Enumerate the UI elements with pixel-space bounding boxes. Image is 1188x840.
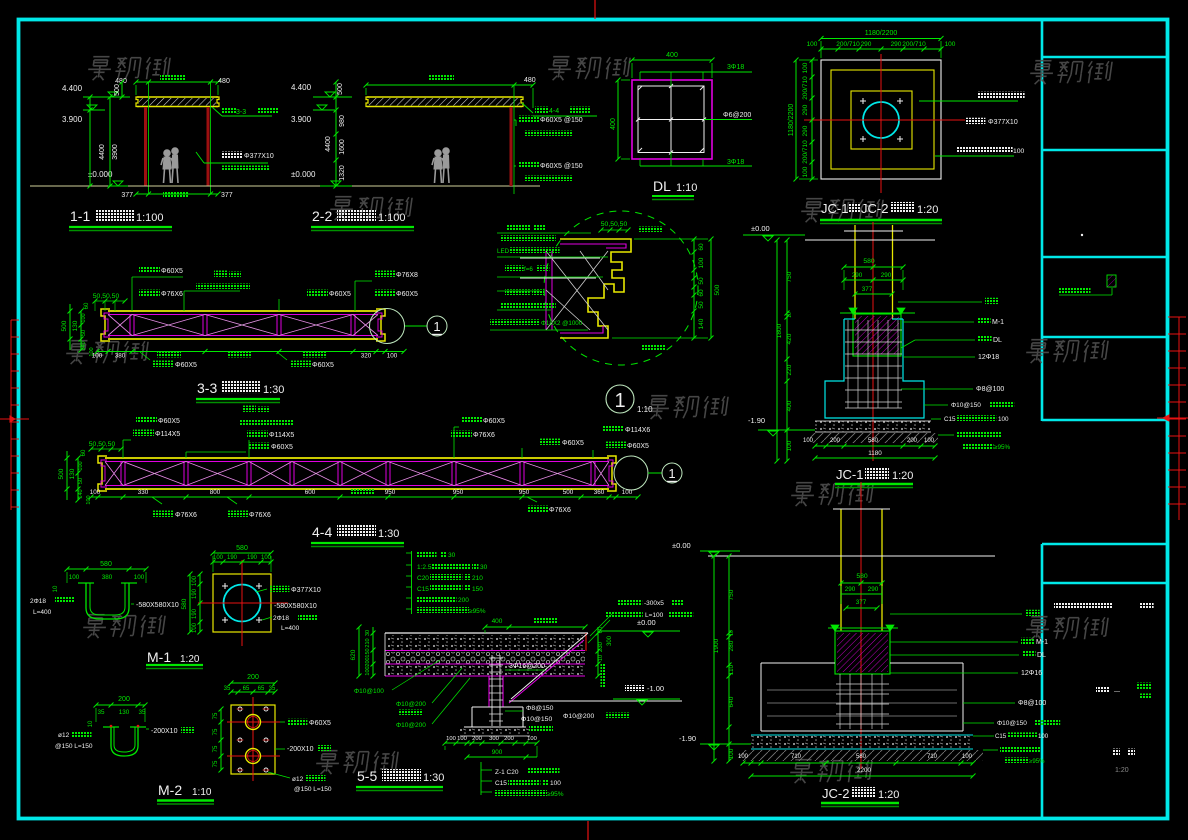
svg-text:≥95%: ≥95% [994, 444, 1010, 451]
svg-text:Φ76X8: Φ76X8 [396, 272, 418, 279]
svg-text:C15: C15 [495, 780, 507, 787]
svg-text:500: 500 [337, 83, 344, 95]
svg-text:130: 130 [72, 320, 79, 331]
svg-text:Φ114X6: Φ114X6 [625, 427, 650, 434]
svg-text:1:20: 1:20 [917, 204, 938, 216]
svg-text:4400: 4400 [99, 144, 106, 160]
svg-text:Φ60X5: Φ60X5 [483, 418, 505, 425]
svg-text:100: 100 [698, 257, 705, 268]
svg-text:-580X580X10: -580X580X10 [274, 603, 317, 610]
svg-text:290: 290 [845, 586, 856, 593]
svg-text:400: 400 [666, 52, 678, 59]
svg-text:130: 130 [69, 468, 76, 479]
svg-text:200: 200 [472, 736, 482, 742]
svg-text:LED: LED [497, 248, 510, 255]
svg-text:60: 60 [698, 289, 705, 297]
svg-text:JC-2: JC-2 [861, 201, 888, 216]
svg-text:140: 140 [698, 318, 705, 329]
svg-text:377: 377 [856, 599, 867, 606]
svg-text:580: 580 [856, 573, 868, 580]
svg-text:75: 75 [213, 728, 219, 735]
svg-text:500: 500 [714, 284, 721, 295]
svg-text:C15: C15 [417, 586, 429, 593]
svg-text:-200X10: -200X10 [151, 728, 178, 735]
svg-text:75: 75 [213, 712, 219, 719]
svg-text:290: 290 [891, 41, 902, 48]
svg-text:580: 580 [856, 754, 867, 760]
svg-text:200: 200 [504, 736, 514, 742]
svg-text:580: 580 [868, 438, 879, 444]
svg-text:200: 200 [365, 657, 371, 666]
svg-text:950: 950 [453, 489, 464, 496]
svg-text:100: 100 [446, 736, 456, 742]
svg-text:380: 380 [115, 353, 126, 360]
svg-text:4400: 4400 [325, 136, 332, 152]
svg-text:360: 360 [594, 489, 605, 496]
svg-text:30: 30 [480, 564, 488, 571]
svg-text:100: 100 [527, 736, 537, 742]
svg-text:-1.00: -1.00 [647, 684, 664, 693]
svg-text:420: 420 [786, 333, 793, 344]
svg-text:Φ60X5: Φ60X5 [396, 291, 418, 298]
svg-text:Φ76X6: Φ76X6 [161, 291, 183, 298]
svg-text:-200X10: -200X10 [287, 746, 314, 753]
svg-text:60: 60 [698, 243, 705, 251]
svg-text:Φ377X10: Φ377X10 [988, 119, 1018, 126]
svg-text:290: 290 [802, 125, 809, 136]
svg-text:1900: 1900 [713, 638, 720, 653]
svg-text:290: 290 [852, 272, 863, 279]
svg-text:100: 100 [728, 748, 735, 759]
svg-text:Φ76X6: Φ76X6 [549, 507, 571, 514]
svg-text:2Φ18: 2Φ18 [273, 615, 289, 622]
svg-text:1180/2200: 1180/2200 [788, 104, 795, 137]
svg-text:200/710: 200/710 [802, 76, 809, 100]
svg-text:500: 500 [61, 320, 68, 331]
svg-text:1:100: 1:100 [136, 212, 164, 224]
svg-text:710: 710 [791, 754, 802, 760]
svg-text:10: 10 [53, 585, 59, 592]
svg-text:Φ10@200: Φ10@200 [396, 722, 426, 729]
svg-text:±0.000: ±0.000 [88, 170, 113, 179]
svg-text:750: 750 [786, 271, 793, 282]
svg-text:50: 50 [698, 301, 705, 309]
svg-text:Φ114X5: Φ114X5 [269, 432, 294, 439]
svg-text:Φ8@100: Φ8@100 [1018, 700, 1046, 707]
svg-text:1:10: 1:10 [676, 182, 697, 194]
svg-text:C20: C20 [417, 575, 429, 582]
svg-text:1:30: 1:30 [378, 528, 399, 540]
svg-text:Φ377X10: Φ377X10 [244, 153, 274, 160]
svg-text:100: 100 [78, 461, 84, 470]
svg-text:980: 980 [339, 115, 346, 127]
svg-text:Φ377X10: Φ377X10 [291, 587, 321, 594]
svg-text:230: 230 [598, 641, 604, 652]
svg-text:10: 10 [598, 655, 604, 661]
svg-text:100: 100 [192, 575, 198, 586]
svg-text:100: 100 [261, 555, 272, 561]
svg-text:290: 290 [802, 104, 809, 115]
svg-text:320: 320 [361, 353, 372, 360]
svg-text:1:100: 1:100 [378, 212, 406, 224]
svg-text:500: 500 [563, 489, 574, 496]
svg-text:1:10: 1:10 [637, 405, 653, 414]
svg-text:300: 300 [489, 736, 499, 742]
svg-text:1:20: 1:20 [892, 470, 913, 482]
svg-text:≥95%: ≥95% [1029, 758, 1045, 765]
svg-text:10: 10 [88, 720, 94, 727]
svg-text:4-4: 4-4 [549, 108, 559, 115]
svg-text:100: 100 [802, 166, 809, 177]
svg-text:950: 950 [519, 489, 530, 496]
svg-text:4.400: 4.400 [62, 84, 83, 93]
svg-text:Z-1 C20: Z-1 C20 [495, 769, 519, 776]
svg-text:Φ60X5 @150: Φ60X5 @150 [540, 117, 583, 124]
svg-text:Φ6@200: Φ6@200 [723, 112, 751, 119]
svg-text:60: 60 [81, 449, 87, 456]
svg-text:100: 100 [192, 622, 198, 633]
svg-text:1:20: 1:20 [180, 654, 200, 665]
svg-text:480: 480 [218, 78, 230, 85]
svg-text:100: 100 [92, 353, 103, 360]
svg-text:Φ8@100: Φ8@100 [976, 386, 1004, 393]
svg-text:65: 65 [243, 686, 250, 692]
svg-text:DL: DL [993, 337, 1002, 344]
svg-text:710: 710 [927, 754, 938, 760]
svg-text:200: 200 [118, 696, 130, 703]
svg-text:150: 150 [472, 586, 483, 593]
svg-text:Φ60X5: Φ60X5 [562, 440, 584, 447]
svg-text:12Φ18: 12Φ18 [978, 354, 999, 361]
svg-text:400: 400 [610, 118, 617, 130]
svg-text:M-1: M-1 [992, 319, 1004, 326]
svg-text:75: 75 [213, 760, 219, 767]
svg-text:1:20: 1:20 [1115, 767, 1129, 774]
svg-text:100: 100 [69, 574, 80, 581]
svg-text:50: 50 [81, 330, 87, 336]
svg-text:1:30: 1:30 [263, 384, 284, 396]
svg-text:1:2.5: 1:2.5 [417, 564, 432, 571]
svg-text:640: 640 [728, 696, 735, 707]
svg-text:-1.90: -1.90 [748, 416, 765, 425]
svg-text:110: 110 [728, 664, 735, 675]
svg-text:330: 330 [138, 489, 149, 496]
svg-text:130: 130 [119, 709, 130, 716]
svg-text:3Φ16@200: 3Φ16@200 [509, 663, 545, 670]
svg-text:≥95%: ≥95% [547, 791, 564, 798]
svg-text:L=100: L=100 [645, 612, 664, 619]
svg-text:200: 200 [458, 597, 469, 604]
svg-text:-580X580X10: -580X580X10 [136, 602, 179, 609]
svg-text:210: 210 [365, 638, 371, 647]
svg-text:4.400: 4.400 [291, 83, 312, 92]
svg-text:950: 950 [385, 489, 396, 496]
svg-text:10: 10 [787, 312, 793, 318]
svg-text:C15: C15 [944, 416, 956, 423]
svg-text:100: 100 [387, 353, 398, 360]
svg-text:3-3: 3-3 [197, 380, 217, 396]
svg-text:600: 600 [305, 489, 316, 496]
svg-text:±0.00: ±0.00 [751, 224, 770, 233]
svg-text:100: 100 [81, 313, 87, 322]
svg-text:500: 500 [114, 84, 121, 96]
svg-text:190: 190 [192, 588, 198, 599]
svg-text:DL: DL [1037, 652, 1046, 659]
svg-text:290: 290 [881, 272, 892, 279]
svg-text:C15: C15 [995, 733, 1007, 740]
svg-text:DL: DL [653, 178, 671, 194]
svg-text:380: 380 [102, 574, 113, 581]
svg-text:Φ10@200: Φ10@200 [563, 713, 594, 720]
svg-text:377: 377 [121, 192, 133, 199]
svg-text:50: 50 [698, 277, 705, 285]
svg-text:100: 100 [213, 555, 224, 561]
svg-text:100: 100 [803, 438, 814, 444]
svg-text:Φ76X6: Φ76X6 [175, 512, 197, 519]
svg-text:JC-2: JC-2 [822, 786, 849, 801]
svg-text:75: 75 [213, 745, 219, 752]
svg-text:1: 1 [433, 319, 440, 334]
svg-text:10: 10 [729, 630, 735, 636]
svg-text:200: 200 [907, 438, 918, 444]
svg-text:3.900: 3.900 [62, 115, 83, 124]
svg-text:1180: 1180 [868, 450, 882, 457]
svg-text:100: 100 [550, 780, 561, 787]
svg-text:Φ10@150: Φ10@150 [951, 402, 981, 409]
svg-text:50,50,50: 50,50,50 [601, 221, 628, 228]
svg-text:100: 100 [962, 754, 973, 760]
svg-text:200/710: 200/710 [902, 41, 926, 48]
svg-text:-1.90: -1.90 [679, 734, 696, 743]
svg-text:35: 35 [269, 686, 276, 692]
svg-text:Φ60X5: Φ60X5 [309, 720, 331, 727]
svg-text:35: 35 [224, 686, 231, 692]
svg-text:100: 100 [924, 438, 935, 444]
svg-text:580: 580 [863, 258, 875, 265]
svg-text:500: 500 [58, 468, 65, 479]
svg-text:Φ60X5: Φ60X5 [271, 444, 293, 451]
svg-text:280: 280 [728, 640, 735, 651]
svg-text:1:20: 1:20 [878, 789, 899, 801]
svg-text:140: 140 [81, 341, 87, 350]
svg-text:2Φ18: 2Φ18 [30, 598, 46, 605]
svg-text:±0.00: ±0.00 [672, 541, 691, 550]
svg-text:210: 210 [472, 575, 483, 582]
svg-text:Φ60X5: Φ60X5 [312, 362, 334, 369]
svg-text:1:30: 1:30 [423, 772, 444, 784]
svg-text:2-2: 2-2 [312, 208, 332, 224]
svg-text:M-2: M-2 [158, 782, 182, 798]
svg-text:100: 100 [457, 736, 467, 742]
svg-text:M-1: M-1 [1036, 639, 1048, 646]
svg-text:480: 480 [115, 78, 127, 85]
svg-text:50: 50 [78, 478, 84, 484]
svg-text:3.900: 3.900 [291, 115, 312, 124]
svg-text:Φ60X5: Φ60X5 [329, 291, 351, 298]
svg-text:1: 1 [614, 390, 625, 412]
svg-text:400: 400 [492, 618, 503, 625]
svg-text:L=400: L=400 [281, 625, 300, 632]
svg-text:290: 290 [868, 586, 879, 593]
svg-text:100: 100 [1038, 733, 1049, 740]
svg-text:Φ60X5: Φ60X5 [158, 418, 180, 425]
svg-text:3Φ18: 3Φ18 [727, 159, 744, 166]
svg-text:3Φ18: 3Φ18 [727, 64, 744, 71]
svg-text:Φ10@200: Φ10@200 [396, 701, 426, 708]
svg-text:L=400: L=400 [33, 609, 52, 616]
svg-text:377: 377 [862, 286, 873, 293]
svg-text:±0.00: ±0.00 [637, 618, 656, 627]
svg-text:ø12: ø12 [58, 732, 70, 739]
svg-text:Φ18X2 @1000: Φ18X2 @1000 [541, 320, 583, 327]
svg-text:Φ76X6: Φ76X6 [249, 512, 271, 519]
svg-text:100: 100 [134, 574, 145, 581]
svg-text:190: 190 [247, 555, 258, 561]
svg-text:1-1: 1-1 [70, 208, 90, 224]
svg-text:12Φ16: 12Φ16 [1021, 670, 1042, 677]
svg-text:M-1: M-1 [147, 649, 171, 665]
svg-text:400: 400 [786, 400, 793, 411]
svg-text:1180/2200: 1180/2200 [865, 30, 898, 37]
svg-text:Φ8@150: Φ8@150 [526, 705, 554, 712]
svg-text:580: 580 [181, 598, 188, 609]
svg-text:3-3: 3-3 [236, 109, 246, 116]
svg-text:100: 100 [807, 41, 818, 48]
svg-text:1600: 1600 [339, 139, 346, 155]
svg-text:100: 100 [622, 489, 633, 496]
svg-text:4-4: 4-4 [312, 524, 332, 540]
svg-text:900: 900 [492, 749, 503, 756]
svg-text:1:10: 1:10 [192, 787, 212, 798]
svg-text:Φ60X5: Φ60X5 [175, 362, 197, 369]
svg-text:≥95%: ≥95% [469, 608, 486, 615]
svg-text:140: 140 [78, 489, 84, 498]
svg-text:620: 620 [350, 649, 357, 660]
svg-text:-300x5: -300x5 [644, 600, 664, 607]
svg-text:Φ10@150: Φ10@150 [521, 716, 552, 723]
svg-text:300: 300 [607, 635, 613, 646]
svg-text:1: 1 [668, 466, 675, 481]
svg-text:190: 190 [192, 608, 198, 619]
svg-text:Φ60X5 @150: Φ60X5 @150 [540, 163, 583, 170]
svg-text:Φ10@100: Φ10@100 [354, 688, 384, 695]
svg-text:100: 100 [90, 489, 101, 496]
svg-text:800: 800 [210, 489, 221, 496]
svg-text:1320: 1320 [339, 165, 346, 181]
svg-text:100: 100 [802, 62, 809, 73]
svg-text:100: 100 [365, 666, 371, 675]
svg-text:Φ114X5: Φ114X5 [155, 431, 180, 438]
svg-text:60: 60 [84, 302, 90, 309]
svg-text:100: 100 [738, 754, 749, 760]
svg-text:377: 377 [221, 192, 233, 199]
svg-text:2200: 2200 [857, 767, 872, 774]
svg-text:f=6: f=6 [524, 266, 533, 273]
svg-text:Φ76X6: Φ76X6 [473, 432, 495, 439]
svg-text:JC-1: JC-1 [836, 467, 863, 482]
svg-text:200/710: 200/710 [836, 41, 860, 48]
svg-text:Φ60X5: Φ60X5 [161, 268, 183, 275]
svg-text:@150 L=150: @150 L=150 [294, 786, 332, 793]
svg-text:290: 290 [861, 41, 872, 48]
svg-text:100: 100 [945, 41, 956, 48]
svg-text:3900: 3900 [112, 144, 119, 160]
svg-text:580: 580 [100, 561, 112, 568]
svg-text:—: — [1114, 689, 1120, 695]
svg-text:100: 100 [786, 440, 793, 451]
svg-text:200/710: 200/710 [802, 140, 809, 164]
svg-text:100: 100 [1013, 148, 1025, 155]
svg-text:200: 200 [830, 438, 841, 444]
svg-text:150: 150 [365, 648, 371, 657]
svg-text:1800: 1800 [776, 323, 783, 338]
svg-text:Φ60X5: Φ60X5 [627, 443, 649, 450]
svg-text:JC-1: JC-1 [821, 201, 848, 216]
svg-text:@150 L=150: @150 L=150 [55, 743, 93, 750]
svg-text:5-5: 5-5 [357, 768, 377, 784]
svg-text:Φ10@150: Φ10@150 [997, 720, 1027, 727]
svg-text:200: 200 [247, 674, 259, 681]
svg-text:ø12: ø12 [292, 776, 304, 783]
svg-text:±0.000: ±0.000 [291, 170, 316, 179]
svg-text:100: 100 [998, 416, 1009, 423]
svg-text:580: 580 [236, 545, 248, 552]
svg-text:35: 35 [97, 709, 105, 716]
svg-text:220: 220 [786, 364, 793, 375]
svg-text:750: 750 [728, 589, 735, 600]
svg-text:30: 30 [448, 552, 456, 559]
svg-text:65: 65 [258, 686, 265, 692]
svg-text:30: 30 [365, 630, 371, 636]
svg-text:190: 190 [227, 555, 238, 561]
svg-text:480: 480 [524, 77, 536, 84]
